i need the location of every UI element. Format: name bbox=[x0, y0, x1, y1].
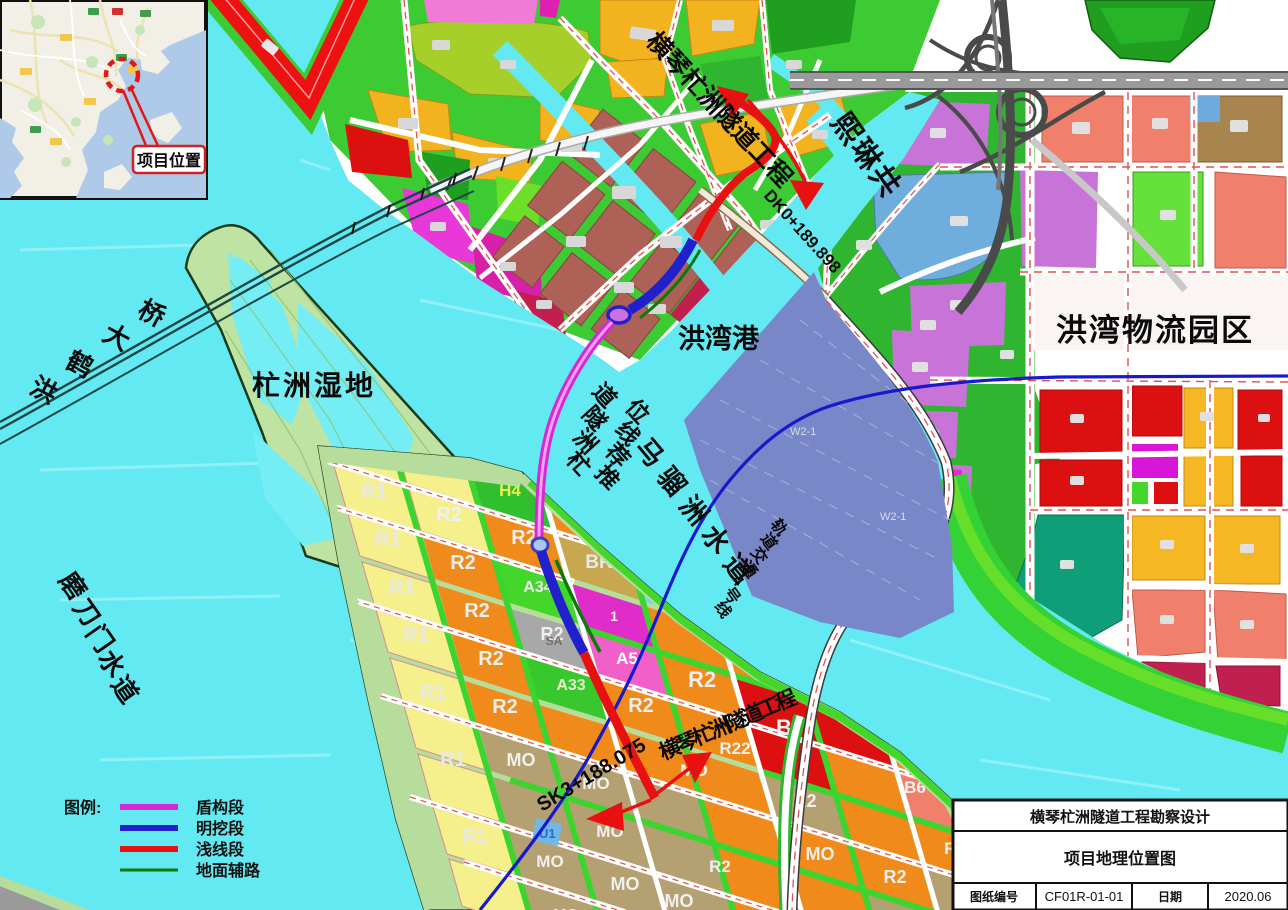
svg-text:A33: A33 bbox=[556, 677, 585, 694]
svg-text:R1: R1 bbox=[462, 826, 488, 848]
svg-text:R1: R1 bbox=[375, 529, 401, 551]
svg-text:R22: R22 bbox=[719, 739, 750, 758]
svg-text:R1: R1 bbox=[361, 481, 387, 503]
svg-text:浅线段: 浅线段 bbox=[196, 840, 245, 859]
svg-text:明挖段: 明挖段 bbox=[196, 819, 245, 838]
svg-text:MO: MO bbox=[665, 891, 694, 910]
svg-text:R1: R1 bbox=[403, 625, 429, 647]
svg-text:1: 1 bbox=[610, 608, 618, 624]
svg-text:R2: R2 bbox=[464, 600, 490, 622]
svg-text:R2: R2 bbox=[478, 648, 504, 670]
svg-text:MO: MO bbox=[806, 844, 835, 864]
svg-text:洪湾港: 洪湾港 bbox=[678, 323, 760, 354]
svg-text:MO: MO bbox=[611, 874, 640, 894]
svg-text:R2: R2 bbox=[709, 857, 731, 876]
svg-text:R2: R2 bbox=[688, 667, 716, 692]
svg-text:R2: R2 bbox=[450, 552, 476, 574]
svg-text:图例:: 图例: bbox=[64, 798, 101, 817]
svg-text:CF01R-01-01: CF01R-01-01 bbox=[1045, 889, 1124, 904]
svg-text:R2: R2 bbox=[883, 867, 906, 887]
svg-text:项目地理位置图: 项目地理位置图 bbox=[1064, 849, 1176, 868]
svg-text:项目位置: 项目位置 bbox=[137, 151, 201, 170]
svg-text:R1: R1 bbox=[420, 682, 446, 704]
svg-text:洪湾物流园区: 洪湾物流园区 bbox=[1056, 313, 1254, 348]
svg-text:R2: R2 bbox=[628, 695, 654, 717]
svg-text:杧洲湿地: 杧洲湿地 bbox=[252, 370, 376, 401]
svg-text:SA: SA bbox=[546, 634, 563, 648]
svg-text:R2: R2 bbox=[436, 504, 462, 526]
svg-text:MO: MO bbox=[536, 852, 563, 871]
svg-text:横琴杧洲隧道工程勘察设计: 横琴杧洲隧道工程勘察设计 bbox=[1030, 808, 1210, 826]
svg-text:日期: 日期 bbox=[1158, 889, 1182, 904]
svg-text:地面辅路: 地面辅路 bbox=[196, 861, 261, 880]
svg-text:R2: R2 bbox=[492, 696, 518, 718]
svg-text:R1: R1 bbox=[389, 577, 415, 599]
svg-text:W2-1: W2-1 bbox=[880, 511, 906, 523]
svg-text:R1: R1 bbox=[440, 749, 466, 771]
svg-text:W2-1: W2-1 bbox=[790, 426, 816, 438]
svg-text:2020.06: 2020.06 bbox=[1225, 889, 1272, 904]
svg-text:图纸编号: 图纸编号 bbox=[970, 889, 1018, 904]
svg-text:MO: MO bbox=[507, 750, 536, 770]
svg-text:盾构段: 盾构段 bbox=[196, 798, 245, 817]
